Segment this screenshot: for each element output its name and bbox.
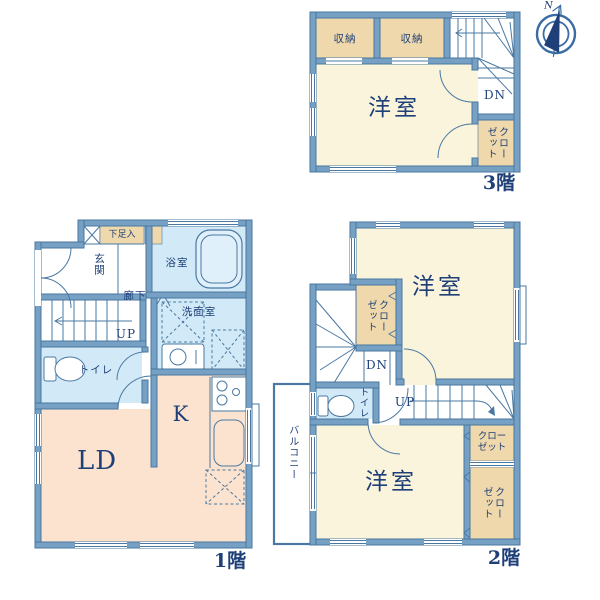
vanity-icon <box>162 344 204 370</box>
label-closet-east-north-2f: クローゼット <box>475 432 509 454</box>
label-toilet-1f: トイレ <box>79 364 114 376</box>
label-bathroom-1f: 浴室 <box>166 257 189 269</box>
label-storage-left-3f: 収納 <box>334 33 357 45</box>
floor1-label: 1階 <box>214 551 246 573</box>
label-stairs-up-2f: UP <box>395 396 415 410</box>
label-closet-3f: クローゼット <box>485 125 508 162</box>
label-hallway-1f: 廊下 <box>124 290 147 302</box>
floor3-label: 3階 <box>483 173 515 195</box>
stairwell-down-2f <box>316 290 356 385</box>
label-western-north-2f: 洋室 <box>412 274 464 300</box>
label-balcony-2f: バルコニー <box>286 421 298 483</box>
label-entrance-1f: 玄関 <box>93 250 105 278</box>
stairs-up-2f <box>410 385 514 419</box>
label-living-dining-1f: LD <box>77 447 117 477</box>
floor1-plan <box>35 220 259 548</box>
label-storage-right-3f: 収納 <box>401 33 424 45</box>
label-stairs-down-3f: DN <box>484 89 506 103</box>
label-western-room-3f: 洋室 <box>368 95 420 121</box>
bathtub-icon <box>196 230 242 288</box>
toilet-icon-2f <box>318 396 354 417</box>
floor2-label: 2階 <box>488 548 520 570</box>
label-shoe-cabinet-1f: 下足入 <box>108 230 135 240</box>
label-western-south-2f: 洋室 <box>365 469 417 495</box>
label-closet-east-south-2f: クローゼット <box>481 485 504 522</box>
floor-plan-drawing <box>0 0 600 600</box>
floor-plan-canvas: 収納 収納 洋室 DN クローゼット 3階 N 下足入 玄関 浴室 廊下 洗面室… <box>0 0 600 600</box>
compass-north-label: N <box>544 0 554 12</box>
label-stairs-down-2f: DN <box>366 359 388 373</box>
label-toilet-2f: トイレ <box>357 385 368 421</box>
label-stairs-up-1f: UP <box>116 328 136 342</box>
label-washroom-1f: 洗面室 <box>182 306 217 318</box>
compass-icon <box>534 2 580 59</box>
label-closet-inner-2f: クローゼット <box>365 298 388 335</box>
label-kitchen-1f: K <box>173 402 190 426</box>
